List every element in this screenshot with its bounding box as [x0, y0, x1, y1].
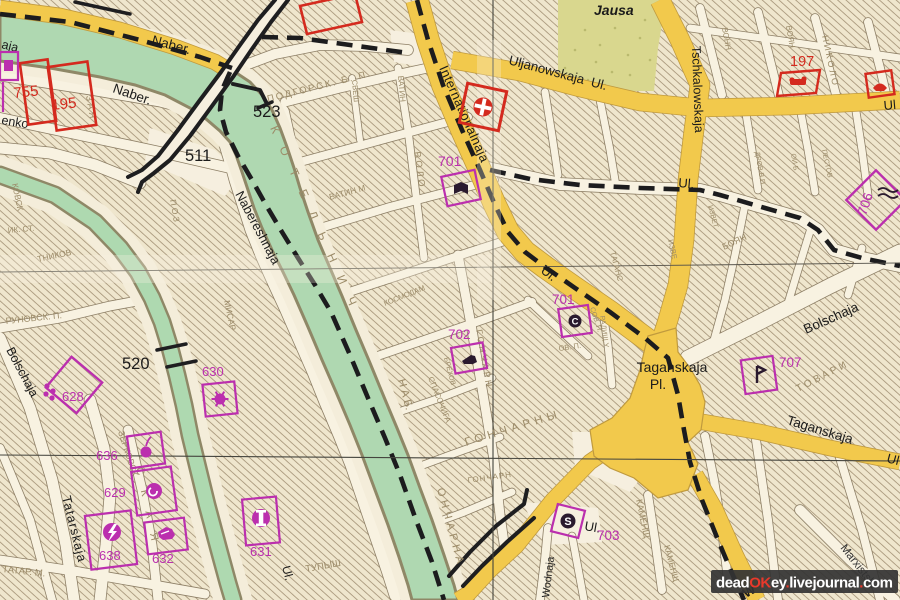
svg-text:703: 703 — [597, 528, 620, 543]
svg-text:629: 629 — [104, 485, 126, 500]
svg-text:636: 636 — [96, 448, 118, 463]
svg-text:702: 702 — [448, 327, 471, 342]
svg-text:638: 638 — [99, 548, 121, 563]
svg-text:628: 628 — [62, 389, 84, 404]
svg-text:Ul.: Ul. — [678, 175, 695, 191]
svg-text:Jausa: Jausa — [594, 2, 634, 18]
svg-text:631: 631 — [250, 544, 272, 559]
svg-text:630: 630 — [202, 364, 224, 379]
svg-text:523: 523 — [253, 103, 281, 121]
svg-text:520: 520 — [122, 355, 150, 373]
svg-text:755: 755 — [13, 82, 40, 102]
svg-text:deadOKey.livejournal.com: deadOKey.livejournal.com — [716, 575, 893, 592]
svg-text:Ul: Ul — [883, 97, 897, 113]
svg-text:707: 707 — [779, 355, 802, 370]
svg-text:C: C — [572, 315, 579, 326]
svg-text:Ul: Ul — [885, 450, 900, 468]
svg-text:S: S — [564, 516, 571, 528]
svg-text:701: 701 — [438, 153, 462, 169]
svg-text:195: 195 — [51, 94, 78, 114]
svg-text:197: 197 — [790, 54, 814, 70]
svg-text:701: 701 — [552, 292, 575, 307]
svg-text:Pl.: Pl. — [650, 376, 666, 392]
svg-text:511: 511 — [185, 147, 211, 165]
svg-text:Taganskaja: Taganskaja — [637, 359, 708, 375]
